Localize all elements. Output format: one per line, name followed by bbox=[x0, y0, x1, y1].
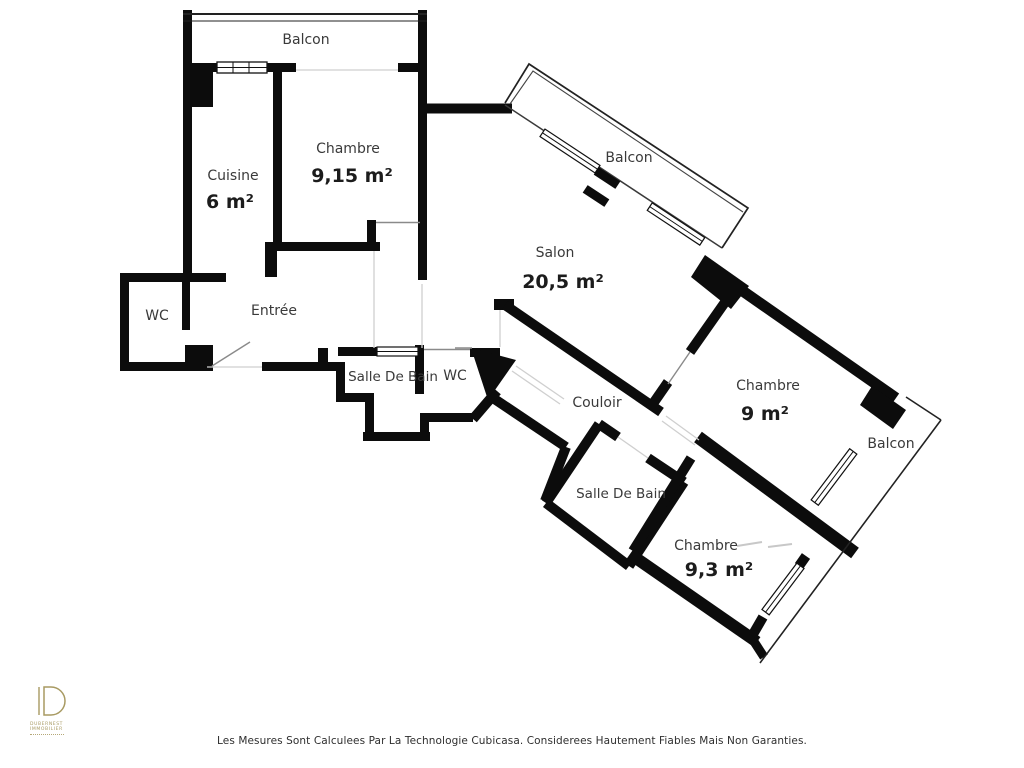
room-area-chambre3: 9,3 m² bbox=[685, 559, 753, 581]
window-symbol-bathroom1 bbox=[377, 347, 418, 356]
room-label-salon: Salon bbox=[536, 245, 575, 261]
room-label-wc1: WC bbox=[145, 308, 169, 324]
room-area-chambre2: 9 m² bbox=[741, 403, 789, 425]
window-symbol-chambre9 bbox=[811, 449, 857, 506]
window-symbol-kitchen bbox=[217, 62, 267, 73]
room-label-salle-de-bain1: Salle De Bain bbox=[348, 369, 438, 385]
floor-plan-canvas: Balcon Cuisine 6 m² Chambre 9,15 m² Balc… bbox=[0, 0, 1024, 768]
room-label-salle-de-bain2: Salle De Bain bbox=[576, 486, 666, 502]
watermark-smudge bbox=[737, 542, 792, 547]
door-line-chambre9 bbox=[668, 352, 690, 384]
window-symbol-salon-2 bbox=[647, 203, 705, 245]
balcony-railing-top-left bbox=[183, 14, 427, 21]
room-label-entree: Entrée bbox=[251, 303, 297, 319]
room-label-balcon-top-left: Balcon bbox=[282, 32, 329, 48]
agency-logo: DUBERNEST IMMOBILIER bbox=[30, 684, 90, 735]
wall-blocks-rotated-wing bbox=[691, 255, 906, 429]
room-label-wc2: WC bbox=[443, 368, 467, 384]
door-leaf-salon-2 bbox=[583, 185, 610, 207]
room-area-chambre1: 9,15 m² bbox=[311, 165, 393, 187]
room-label-couloir: Couloir bbox=[572, 395, 622, 411]
floor-plan-page: Balcon Cuisine 6 m² Chambre 9,15 m² Balc… bbox=[0, 0, 1024, 768]
room-label-chambre3: Chambre bbox=[674, 538, 738, 554]
room-label-balcon-top-right: Balcon bbox=[605, 150, 652, 166]
room-label-chambre2: Chambre bbox=[736, 378, 800, 394]
window-symbol-salon-1 bbox=[540, 129, 600, 173]
agency-logo-mark bbox=[30, 684, 66, 718]
agency-logo-name-line2: IMMOBILIER bbox=[30, 727, 90, 732]
window-symbol-chambre93 bbox=[762, 563, 804, 615]
opening-lines-rotated-wing bbox=[618, 416, 699, 458]
room-label-chambre1: Chambre bbox=[316, 141, 380, 157]
room-area-cuisine: 6 m² bbox=[206, 191, 254, 213]
room-label-cuisine: Cuisine bbox=[207, 168, 258, 184]
room-label-balcon-right: Balcon bbox=[867, 436, 914, 452]
disclaimer-text: Les Mesures Sont Calculees Par La Techno… bbox=[0, 735, 1024, 747]
room-area-salon: 20,5 m² bbox=[522, 271, 604, 293]
